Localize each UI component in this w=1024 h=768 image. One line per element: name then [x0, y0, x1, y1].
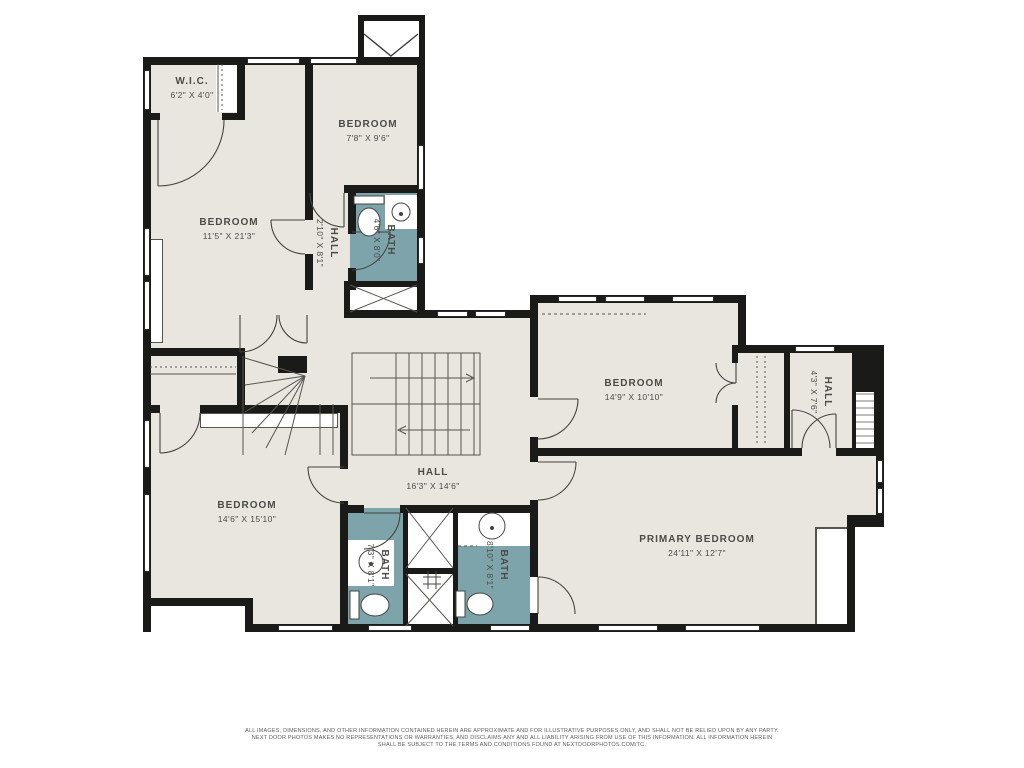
room-label-primary-bedroom: PRIMARY BEDROOM 24'11" X 12'7" — [639, 534, 755, 558]
disclaimer-line-3: SHALL BE SUBJECT TO THE TERMS AND CONDIT… — [0, 742, 1024, 749]
plan-linework-svg — [0, 0, 1024, 768]
room-label-bedroom-right: BEDROOM 14'9" X 10'10" — [604, 378, 663, 402]
room-label-bath-upper: BATH 4'6" X 8'0" — [372, 219, 396, 262]
disclaimer-text: ALL IMAGES, DIMENSIONS, AND OTHER INFORM… — [0, 728, 1024, 749]
room-label-hall-upper: HALL 2'10" X 8'1" — [315, 219, 339, 267]
room-label-bath-lower-left: BATH 7'3" X 8'1" — [366, 544, 390, 587]
disclaimer-line-1: ALL IMAGES, DIMENSIONS, AND OTHER INFORM… — [0, 728, 1024, 735]
plumbing-symbol — [423, 571, 441, 589]
sink-icon — [479, 513, 505, 539]
room-label-wic: W.I.C. 6'2" X 4'0" — [171, 76, 214, 100]
room-label-bedroom-lower-left: BEDROOM 14'6" X 15'10" — [217, 500, 276, 524]
staircase — [243, 353, 480, 455]
room-label-bath-lower-center: BATH 8'10" X 8'1" — [485, 541, 509, 589]
linen-closet-shelves — [856, 394, 874, 443]
toilet-icon — [456, 591, 493, 617]
room-label-bedroom-upper-right: BEDROOM 7'8" X 9'6" — [338, 119, 397, 143]
floor-plan: W.I.C. 6'2" X 4'0" BEDROOM 7'8" X 9'6" B… — [0, 0, 1024, 768]
room-label-hall-center: HALL 16'3" X 14'6" — [406, 467, 459, 491]
chimney-flue-mark — [364, 34, 418, 56]
disclaimer-line-2: NEXT DOOR PHOTOS MAKES NO REPRESENTATION… — [0, 735, 1024, 742]
room-label-hall-right: HALL 4'3" X 7'6" — [809, 371, 833, 414]
toilet-icon — [350, 591, 389, 619]
room-label-bedroom-upper-left: BEDROOM 11'5" X 21'3" — [199, 217, 258, 241]
